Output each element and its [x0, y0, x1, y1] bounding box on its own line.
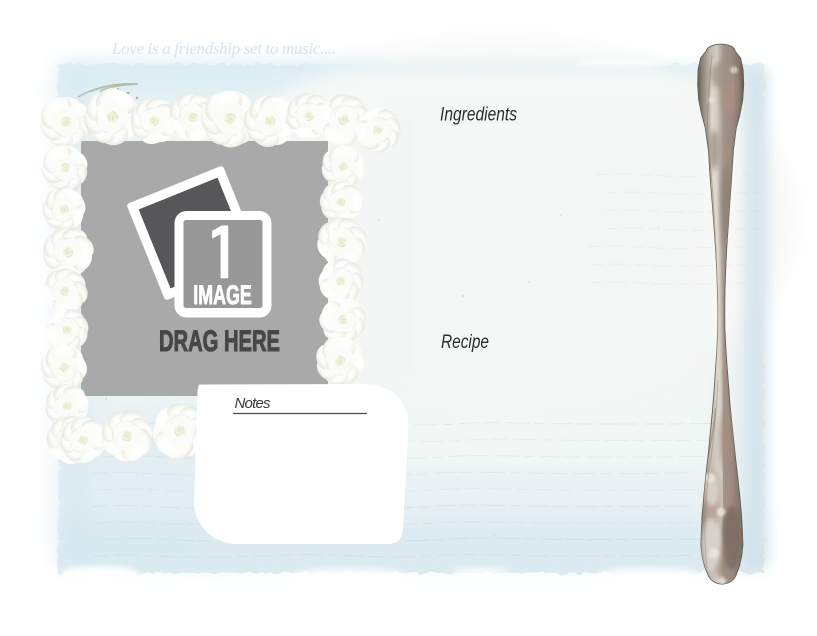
svg-text:IMAGE: IMAGE	[193, 280, 252, 310]
svg-text:Recipe: Recipe	[441, 332, 489, 353]
svg-text:DRAG HERE: DRAG HERE	[159, 325, 280, 358]
svg-text:Ingredients: Ingredients	[440, 105, 517, 126]
svg-text:Love is a friendship set to mu: Love is a friendship set to music....	[111, 39, 336, 58]
svg-text:Notes: Notes	[235, 395, 272, 412]
